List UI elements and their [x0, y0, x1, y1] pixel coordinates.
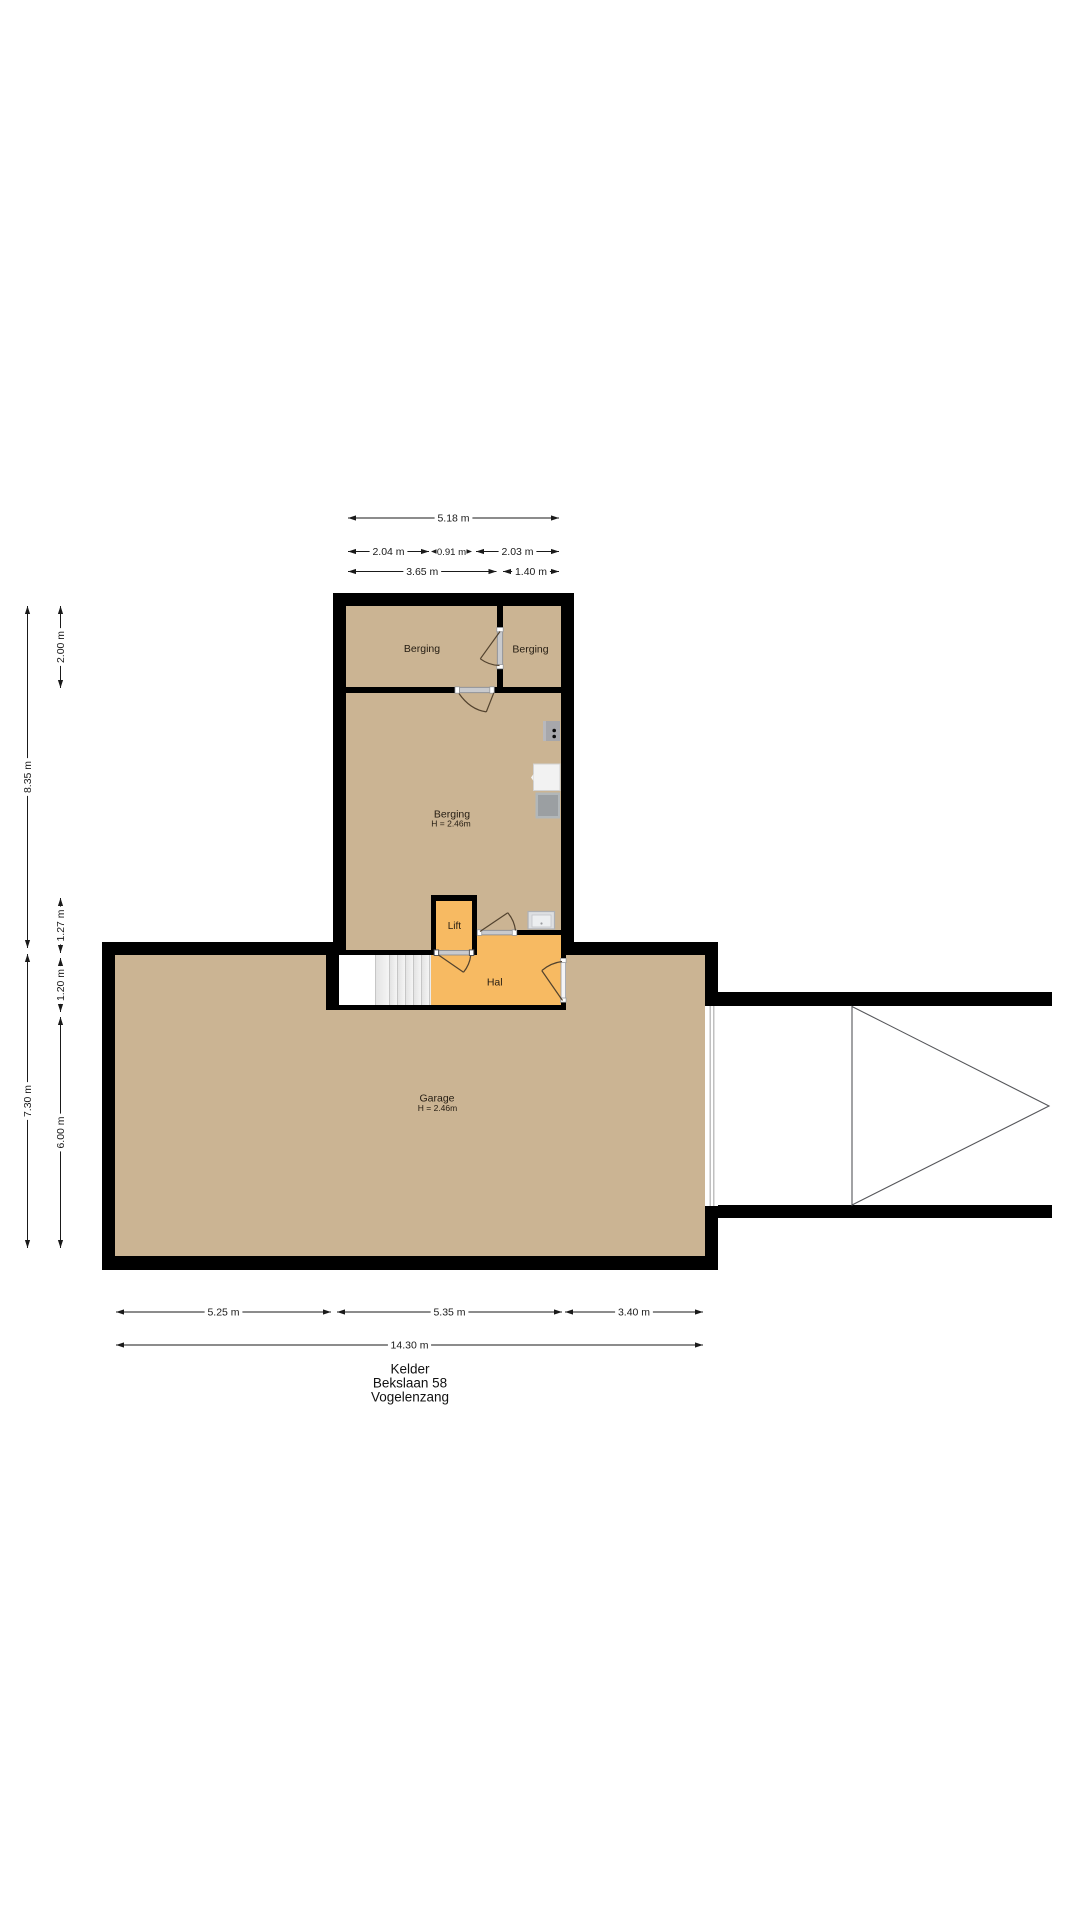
- svg-text:3.40 m: 3.40 m: [618, 1307, 650, 1319]
- svg-text:2.04 m: 2.04 m: [372, 546, 404, 558]
- svg-text:5.35 m: 5.35 m: [433, 1307, 465, 1319]
- svg-text:8.35 m: 8.35 m: [22, 761, 34, 793]
- svg-text:14.30 m: 14.30 m: [391, 1340, 429, 1352]
- svg-text:1.27 m: 1.27 m: [55, 909, 67, 941]
- svg-text:Vogelenzang: Vogelenzang: [371, 1390, 449, 1405]
- svg-text:2.00 m: 2.00 m: [55, 631, 67, 663]
- svg-text:5.25 m: 5.25 m: [207, 1307, 239, 1319]
- svg-text:H = 2.46m: H = 2.46m: [431, 819, 470, 829]
- svg-text:Hal: Hal: [487, 977, 503, 989]
- svg-text:1.20 m: 1.20 m: [55, 969, 67, 1001]
- svg-text:2.03 m: 2.03 m: [501, 546, 533, 558]
- svg-text:6.00 m: 6.00 m: [55, 1116, 67, 1148]
- svg-text:7.30 m: 7.30 m: [22, 1085, 34, 1117]
- svg-text:H = 2.46m: H = 2.46m: [418, 1103, 457, 1113]
- svg-text:Berging: Berging: [512, 644, 548, 656]
- svg-text:3.65 m: 3.65 m: [406, 566, 438, 578]
- svg-text:1.40 m: 1.40 m: [515, 566, 547, 578]
- svg-text:5.18 m: 5.18 m: [437, 513, 469, 525]
- svg-text:0.91 m: 0.91 m: [437, 547, 466, 558]
- svg-text:Bekslaan 58: Bekslaan 58: [373, 1376, 447, 1391]
- svg-text:Berging: Berging: [404, 643, 440, 655]
- svg-text:Kelder: Kelder: [390, 1362, 430, 1377]
- svg-text:Lift: Lift: [448, 921, 462, 932]
